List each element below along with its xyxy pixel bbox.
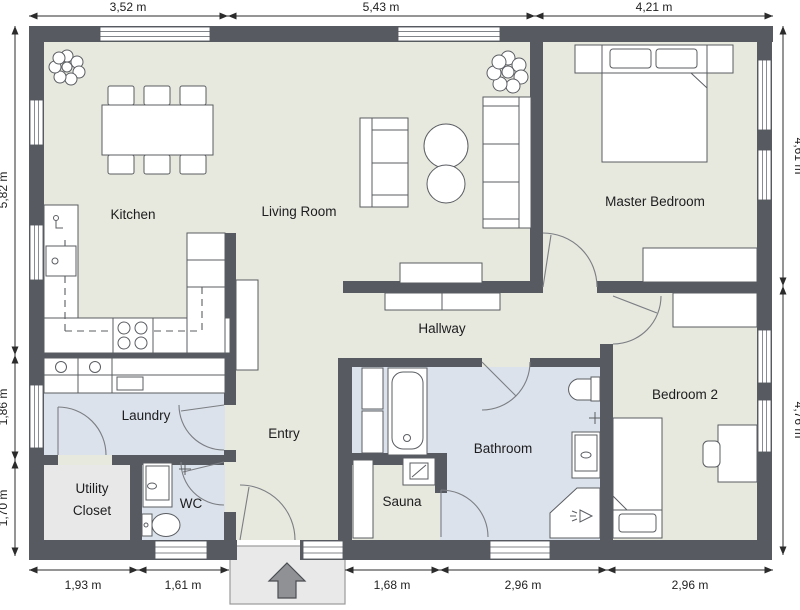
window-bedroom2-right-1 [758,330,771,383]
dim-left-1: 5,82 m [0,172,10,209]
dim-bottom-4: 2,96 m [505,578,542,592]
dim-top-2: 5,43 m [363,0,400,14]
dim-bottom-2: 1,61 m [165,578,202,592]
window-bedroom2-right-2 [758,400,771,452]
wc-label: WC [180,496,203,511]
bathtub [388,368,427,455]
dim-top-3: 4,21 m [636,0,673,14]
dim-bottom-5: 2,96 m [672,578,709,592]
dim-right-1: 4,61 m [792,138,800,175]
washer-dryer-counter [44,358,225,393]
wall-master-left [530,42,543,281]
window-laundry-left [30,385,43,448]
toilet [142,514,180,537]
dim-bottom-3: 1,68 m [374,578,411,592]
utility-closet-label-line1: Utility [76,481,109,496]
kitchen-label: Kitchen [110,207,155,222]
toilet [569,377,600,401]
window-kitchen-top [100,27,210,41]
bedroom2-label: Bedroom 2 [652,387,718,402]
window-kitchen-left-1 [30,100,43,145]
wall-entry-wc [224,512,236,540]
utility-closet-label-line2: Closet [73,503,112,518]
entry-closet [236,280,258,370]
bathroom-closet [362,368,383,453]
sauna-stove [403,458,435,485]
wall-entry-laundry-2 [224,450,236,462]
dining-table [102,86,213,174]
tv-sideboard [400,263,482,283]
nightstand [707,45,733,73]
window-kitchen-left-2 [30,225,43,280]
floor-plan-canvas: Kitchen Living Room Master Bedroom Hallw… [0,0,800,610]
single-bed [613,418,662,538]
hallway-cabinet [385,293,442,310]
window-master-right-1 [758,60,771,130]
wall-laundry-utility-1 [44,455,58,465]
three-seat-sofa [483,97,531,228]
window-entry-sidelight [303,541,343,559]
dim-top-1: 3,52 m [110,0,147,14]
entry-label: Entry [268,426,300,441]
wall-hallway-bedroom2 [597,281,757,293]
hallway-furniture [385,293,500,310]
wardrobe [673,293,757,327]
wardrobe [643,248,757,282]
laundry-label: Laundry [122,408,171,423]
window-living-top [398,27,500,41]
wall-entry-sauna [338,358,352,540]
wall-bathroom-bedroom2 [600,344,613,540]
master-bedroom-label: Master Bedroom [605,194,705,209]
desk [718,425,757,482]
wash-basin [572,432,600,478]
dim-left-2: 1,86 m [0,389,10,426]
sauna-label: Sauna [382,494,422,509]
wall-utility-wc [130,465,142,540]
hallway-cabinet [442,293,500,310]
dim-right-2: 4,76 m [792,402,800,439]
living-room-label: Living Room [261,204,336,219]
wall-sauna-bathroom [435,453,447,493]
bathroom-label: Bathroom [474,441,533,456]
wall-hallway-bathroom-1 [338,358,482,367]
double-bed [602,45,707,162]
window-wc-bottom [155,541,207,559]
cooktop [113,318,153,353]
window-bathroom-bottom [490,541,550,559]
window-master-right-2 [758,150,771,200]
nightstand [575,45,602,73]
dim-bottom-1: 1,93 m [65,578,102,592]
loveseat-sofa [360,118,408,207]
desk-chair [703,441,720,467]
floor-plan-page: Kitchen Living Room Master Bedroom Hallw… [0,0,800,610]
hallway-label: Hallway [418,321,466,336]
dim-left-3: 1,70 m [0,490,10,527]
sauna-bench [353,460,373,538]
laundry-furniture [44,358,225,393]
entry-furniture [236,280,258,370]
wall-entry-laundry-1 [224,358,236,405]
